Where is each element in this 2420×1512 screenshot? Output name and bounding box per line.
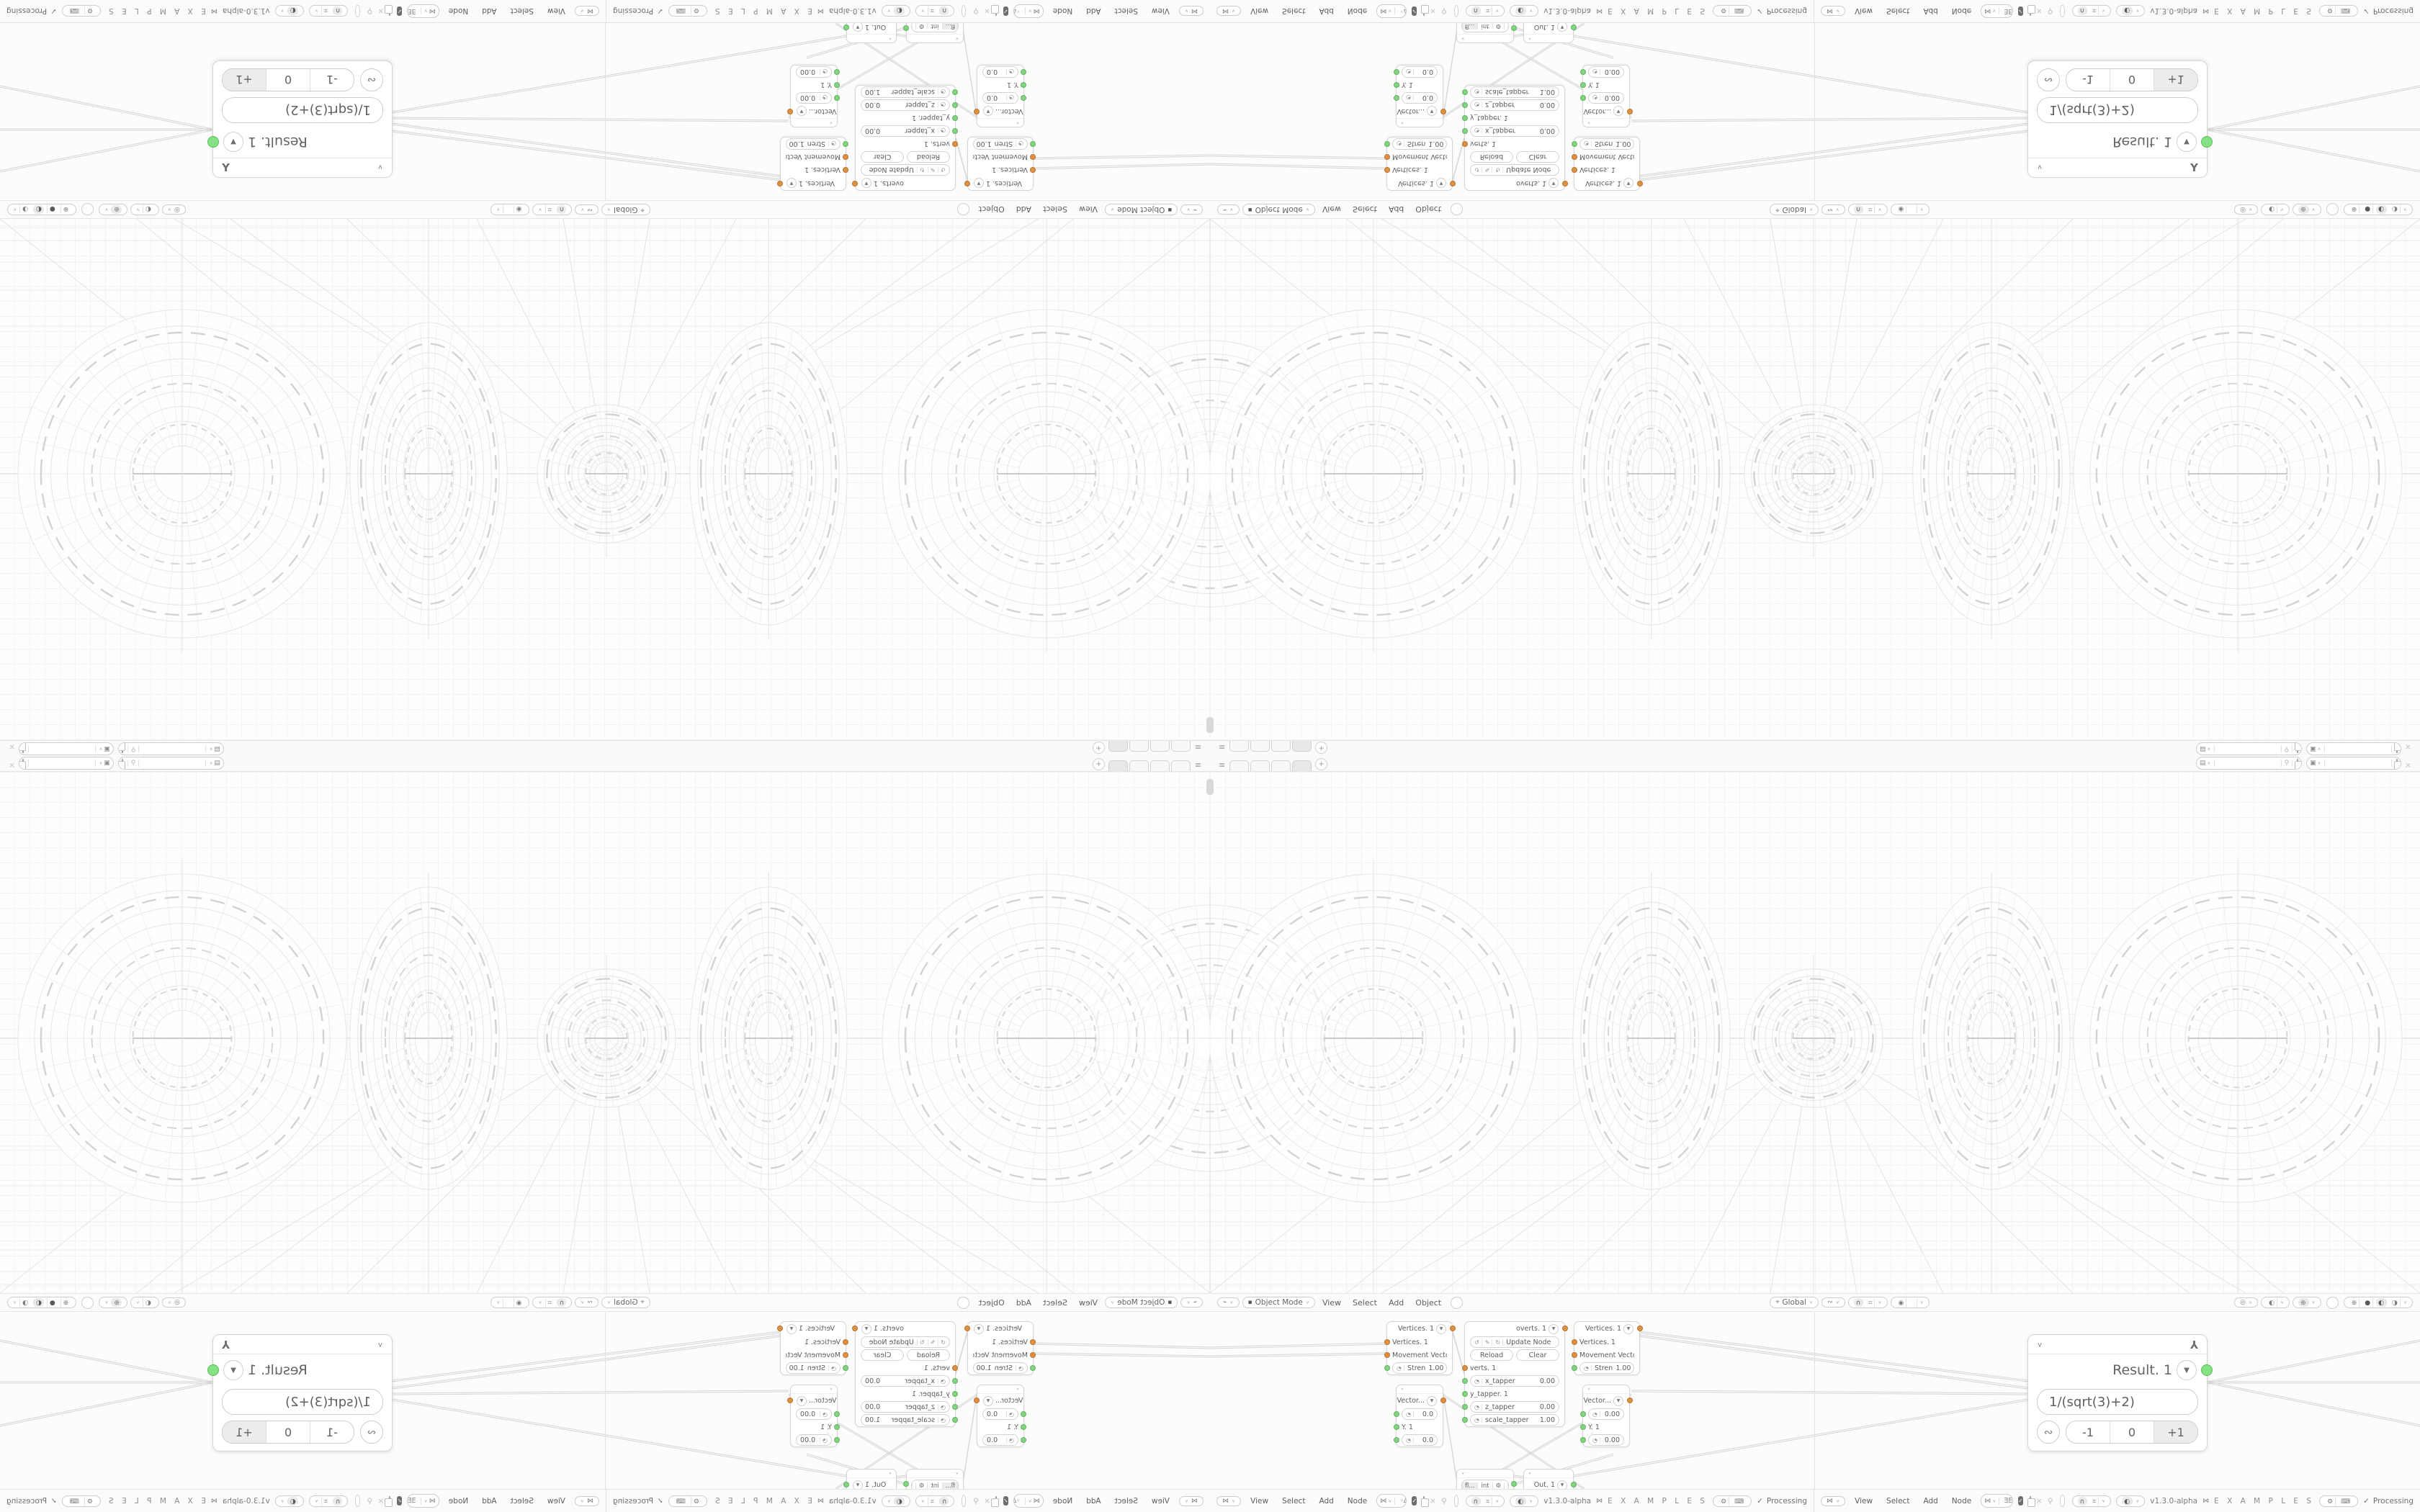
zero-button[interactable]: 0	[2110, 69, 2154, 91]
zero-button[interactable]: 0	[2110, 1421, 2154, 1443]
value-slider[interactable]: ◔0.00	[796, 1434, 832, 1446]
menu-view[interactable]: View	[1318, 205, 1345, 215]
proportional-edit[interactable]: ◉ ∨	[490, 1297, 529, 1308]
value-slider[interactable]: ◔scale_tapper1.00	[861, 86, 950, 98]
close-icon[interactable]: ×	[9, 760, 15, 770]
input-socket[interactable]	[1572, 1352, 1577, 1358]
menu-select[interactable]: Select	[1111, 1497, 1142, 1506]
link-icon-button[interactable]: ∾	[360, 1421, 383, 1444]
menu-add[interactable]: Add	[478, 7, 501, 16]
node-result[interactable]: ∨ Y Result. 1 ▼ 1/(sqrt(3)+2) ∾ -1 0 +1	[212, 60, 393, 178]
pivot-select[interactable]: ∾ ∨	[575, 1297, 599, 1308]
snap-controls[interactable]: ∩ ⌗ ∨	[532, 204, 572, 215]
gizmo-toggle[interactable]: ⊕ ∨	[2293, 1297, 2321, 1308]
orientation-select[interactable]: ⌖ Global ∨	[1770, 204, 1819, 215]
link-icon-button[interactable]: ∾	[360, 68, 383, 91]
overlay-toggle[interactable]: ◐∨	[1510, 6, 1538, 17]
node-result[interactable]: ∨ Y Result. 1 ▼ 1/(sqrt(3)+2) ∾ -1 0 +1	[212, 1334, 393, 1452]
output-socket[interactable]	[788, 109, 794, 114]
value-slider[interactable]: ◔z_tapper0.00	[861, 1401, 950, 1413]
view-layer-selector[interactable]: ▣∨	[2306, 742, 2401, 755]
result-output-socket[interactable]	[2201, 1364, 2213, 1376]
annotate-circle-button[interactable]	[957, 1297, 969, 1309]
editor-type-select[interactable]: ⋈∨	[1821, 6, 1845, 17]
update-node-toolbar[interactable]: ↺✎↻Update Node	[1470, 164, 1559, 176]
node-vector-2[interactable]: ∨Vector...▼◔0.00Y. 1◔0.00	[790, 65, 838, 127]
input-socket[interactable]	[1462, 1365, 1468, 1371]
viewport-3d[interactable]	[0, 772, 1210, 1293]
menu-add[interactable]: Add	[1919, 7, 1942, 16]
collapse-chevron-icon[interactable]: ∨	[1016, 1387, 1019, 1392]
minus-one-button[interactable]: -1	[310, 1421, 354, 1443]
output-socket[interactable]	[974, 109, 980, 114]
editor-type-select[interactable]: ⋈∨	[1216, 1496, 1241, 1506]
node-dropdown[interactable]: ▼	[786, 179, 797, 189]
collapse-chevron-icon[interactable]: ∨	[2037, 1341, 2043, 1348]
workspace-tab[interactable]	[1292, 741, 1312, 752]
result-dropdown[interactable]: ▼	[2177, 132, 2197, 152]
output-socket[interactable]	[974, 1398, 980, 1403]
editor-type-select[interactable]: ⌁ ∨	[1217, 1297, 1240, 1308]
menu-select[interactable]: Select	[1882, 7, 1914, 16]
close-icon[interactable]: ×	[2405, 760, 2411, 770]
node-overts-1[interactable]: overts. 1▼↺✎↻Update NodeReloadClearverts…	[1464, 1321, 1565, 1427]
menu-select[interactable]: Select	[506, 1497, 538, 1506]
update-node-toolbar[interactable]: ↺✎↻Update Node	[1470, 1336, 1559, 1348]
area-divider[interactable]	[1814, 1312, 1815, 1489]
node-dropdown[interactable]: ▼	[853, 22, 863, 32]
footer-action-buttons[interactable]: ⚙⌨	[62, 6, 101, 17]
node-vertices-1[interactable]: Vertices. 1▼Vertices. 1Movement Vecto...…	[967, 137, 1034, 191]
node-editor-canvas[interactable]: ∨ Y Result. 1 ▼ 1/(sqrt(3)+2) ∾ -1 0 +1	[1210, 1312, 2420, 1489]
snap-controls[interactable]: ∩ ⌗ ∨	[1848, 1297, 1888, 1308]
menu-icon[interactable]: ≡	[1219, 742, 1225, 752]
collapse-chevron-icon[interactable]: ∨	[830, 121, 833, 125]
editor-type-select[interactable]: ⋈∨	[575, 1496, 599, 1506]
node-editor-canvas[interactable]: ∨ Y Result. 1 ▼ 1/(sqrt(3)+2) ∾ -1 0 +1	[0, 1312, 1210, 1489]
shading-mode-buttons[interactable]: ⊕ ● ◐ ◑ ∨	[7, 204, 76, 215]
output-socket[interactable]	[853, 1326, 859, 1331]
menu-select[interactable]: Select	[1278, 7, 1309, 16]
zero-button[interactable]: 0	[266, 1421, 310, 1443]
collapse-chevron-icon[interactable]: ∨	[1587, 121, 1590, 125]
result-dropdown[interactable]: ▼	[223, 132, 243, 152]
output-socket[interactable]	[853, 181, 859, 186]
menu-select[interactable]: Select	[506, 7, 538, 16]
input-socket[interactable]	[1394, 82, 1399, 88]
footer-action-buttons[interactable]: ⚙⌨	[668, 1495, 707, 1507]
visibility-toggle[interactable]: ◎ ∨	[2234, 204, 2258, 215]
output-socket[interactable]	[1440, 109, 1446, 114]
input-socket[interactable]	[1572, 154, 1577, 160]
shield-check-icon[interactable]: ✓	[397, 1496, 402, 1506]
menu-add[interactable]: Add	[1082, 7, 1105, 16]
footer-action-buttons[interactable]: ⚙⌨	[2319, 6, 2358, 17]
menu-view[interactable]: View	[543, 7, 570, 16]
value-slider[interactable]: ◔x_tapper0.00	[861, 125, 950, 137]
value-slider[interactable]: ◔0.0	[982, 1408, 1018, 1420]
scene-selector[interactable]: ▤∨ ⚲	[118, 757, 224, 770]
collapse-chevron-icon[interactable]: ∨	[830, 1387, 833, 1392]
collapse-chevron-icon[interactable]: ∨	[1461, 1472, 1464, 1476]
value-slider[interactable]: ◔z_tapper0.00	[1470, 99, 1559, 111]
area-resize-handle[interactable]	[1210, 717, 1214, 733]
mode-select[interactable]: ▪ Object Mode ∨	[1105, 1297, 1178, 1308]
mode-select[interactable]: ▪ Object Mode ∨	[1105, 204, 1178, 215]
node-tree-selector[interactable]: ⋈∨ƎE	[1981, 1494, 2013, 1508]
node-dropdown[interactable]: ▼	[1427, 107, 1437, 117]
output-socket[interactable]	[1511, 25, 1517, 31]
node-overts-1[interactable]: overts. 1▼↺✎↻Update NodeReloadClearverts…	[855, 1321, 956, 1427]
update-node-toolbar[interactable]: ↺✎↻Update Node	[861, 1336, 950, 1348]
input-socket[interactable]	[1580, 69, 1586, 75]
node-overts-1[interactable]: overts. 1▼↺✎↻Update NodeReloadClearverts…	[855, 85, 956, 191]
input-socket[interactable]	[1394, 1424, 1399, 1430]
node-vector-1[interactable]: ∨Vector...▼◔0.0Y. 1◔0.0	[977, 65, 1024, 127]
scene-name-field[interactable]	[2215, 757, 2281, 769]
menu-view[interactable]: View	[543, 1497, 570, 1506]
node-vector-2[interactable]: ∨Vector...▼◔0.00Y. 1◔0.00	[1582, 1385, 1630, 1447]
node-dropdown[interactable]: ▼	[861, 1324, 871, 1334]
menu-node[interactable]: Node	[1049, 1497, 1077, 1506]
shield-check-icon[interactable]: ✓	[2018, 6, 2023, 16]
input-socket[interactable]	[1462, 1378, 1468, 1384]
collapse-chevron-icon[interactable]: ∨	[889, 37, 892, 41]
node-dropdown[interactable]: ▼	[1613, 1396, 1623, 1406]
area-resize-handle[interactable]	[1210, 779, 1214, 795]
snap-controls[interactable]: ∩⌗∨	[309, 1495, 349, 1507]
expression-field[interactable]: 1/(sqrt(3)+2)	[2037, 97, 2198, 123]
input-socket[interactable]	[1394, 1437, 1399, 1443]
proportional-edit[interactable]: ◉ ∨	[490, 204, 529, 215]
menu-object[interactable]: Object	[1411, 205, 1446, 215]
menu-select[interactable]: Select	[1348, 205, 1381, 215]
menu-node[interactable]: Node	[1343, 1497, 1371, 1506]
input-socket[interactable]	[1384, 1352, 1390, 1358]
node-vertices-1[interactable]: Vertices. 1▼Vertices. 1Movement Vecto...…	[967, 1321, 1034, 1375]
workspace-tab[interactable]	[1229, 741, 1249, 752]
collapse-chevron-icon[interactable]: ∨	[1528, 37, 1531, 41]
node-result[interactable]: ∨ Y Result. 1 ▼ 1/(sqrt(3)+2) ∾ -1 0 +1	[2027, 1334, 2208, 1452]
workspace-tab[interactable]	[1171, 741, 1191, 752]
node-dropdown[interactable]: ▼	[1549, 1324, 1559, 1334]
node-tree-selector[interactable]: ⋈∨◦Δ◦2S:◆ƆC◆ЯR◦ЯR◆ƆC◆:2S◦Δ◦	[1013, 1494, 1044, 1508]
input-socket[interactable]	[1384, 167, 1390, 173]
value-slider[interactable]: ◔0.00	[796, 1408, 832, 1420]
output-socket[interactable]	[1562, 1326, 1568, 1331]
plus-one-button[interactable]: +1	[223, 1421, 266, 1443]
collapse-chevron-icon[interactable]: ∨	[1528, 1472, 1531, 1476]
value-slider[interactable]: ◔scale_tapper1.00	[1470, 1414, 1559, 1426]
footer-action-buttons[interactable]: ⚙⌨	[668, 6, 707, 17]
input-socket[interactable]	[1572, 1365, 1577, 1371]
editor-type-select[interactable]: ⌁ ∨	[1180, 1297, 1203, 1308]
output-socket[interactable]	[1511, 1481, 1517, 1487]
overlay-toggle[interactable]: ◐∨	[1510, 1495, 1538, 1507]
collapse-chevron-icon[interactable]: ∨	[956, 37, 959, 41]
footer-action-buttons[interactable]: ⚙⌨	[62, 1495, 101, 1507]
scene-selector[interactable]: ▤∨ ⚲	[2196, 742, 2302, 755]
menu-object[interactable]: Object	[974, 205, 1009, 215]
input-socket[interactable]	[1580, 1424, 1586, 1430]
menu-add[interactable]: Add	[1314, 7, 1337, 16]
link-icon-button[interactable]: ∾	[2037, 68, 2060, 91]
plus-one-button[interactable]: +1	[223, 69, 266, 91]
output-socket[interactable]	[844, 1482, 850, 1488]
result-dropdown[interactable]: ▼	[223, 1360, 243, 1380]
scene-name-field[interactable]	[139, 743, 205, 755]
menu-select[interactable]: Select	[1039, 1298, 1072, 1308]
plus-one-button[interactable]: +1	[2154, 69, 2197, 91]
shading-mode-buttons[interactable]: ⊕ ● ◐ ◑ ∨	[7, 1297, 76, 1308]
input-socket[interactable]	[1462, 115, 1468, 121]
workspace-tab[interactable]	[1250, 741, 1270, 752]
layer-name-field[interactable]	[29, 757, 95, 769]
menu-add[interactable]: Add	[1082, 1497, 1105, 1506]
snap-controls[interactable]: ∩⌗∨	[915, 1495, 955, 1507]
xray-circle-button[interactable]	[81, 1297, 94, 1309]
snap-controls[interactable]: ∩⌗∨	[1466, 1495, 1505, 1507]
node-vector-2[interactable]: ∨Vector...▼◔0.00Y. 1◔0.00	[790, 1385, 838, 1447]
collapse-chevron-icon[interactable]: ∨	[889, 1472, 892, 1476]
snap-controls[interactable]: ∩⌗∨	[1466, 6, 1505, 17]
plus-one-button[interactable]: +1	[2154, 1421, 2197, 1443]
collapse-chevron-icon[interactable]: ∨	[1016, 121, 1019, 125]
gizmo-toggle[interactable]: ⊕ ∨	[99, 204, 127, 215]
scene-selector[interactable]: ▤∨ ⚲	[118, 742, 224, 755]
area-divider[interactable]	[1814, 23, 1815, 200]
proportional-edit[interactable]: ◉ ∨	[1891, 204, 1930, 215]
value-slider[interactable]: ◔0.00	[1588, 1408, 1624, 1420]
menu-select[interactable]: Select	[1039, 205, 1072, 215]
menu-view[interactable]: View	[1147, 7, 1174, 16]
value-slider[interactable]: ◔Stren1.00	[973, 138, 1028, 150]
input-socket[interactable]	[1462, 1404, 1468, 1410]
output-socket[interactable]	[1571, 1482, 1577, 1488]
pin-icon[interactable]: ⚲	[2281, 760, 2293, 767]
menu-select[interactable]: Select	[1111, 7, 1142, 16]
workspace-tab[interactable]	[1171, 760, 1191, 771]
mode-select[interactable]: ▪ Object Mode ∨	[1242, 1297, 1315, 1308]
node-result[interactable]: ∨ Y Result. 1 ▼ 1/(sqrt(3)+2) ∾ -1 0 +1	[2027, 60, 2208, 178]
value-slider[interactable]: ◔x_tapper0.00	[1470, 125, 1559, 137]
visibility-toggle[interactable]: ◎ ∨	[2234, 1297, 2258, 1308]
editor-type-select[interactable]: ⋈∨	[1821, 1496, 1845, 1506]
add-workspace-button[interactable]: +	[1093, 758, 1105, 770]
node-editor-canvas[interactable]: ∨ Y Result. 1 ▼ 1/(sqrt(3)+2) ∾ -1 0 +1	[1210, 23, 2420, 200]
editor-type-select[interactable]: ⌁ ∨	[1217, 204, 1240, 215]
collapse-chevron-icon[interactable]: ∨	[1461, 37, 1464, 41]
menu-node[interactable]: Node	[444, 7, 472, 16]
visibility-toggle[interactable]: ◎ ∨	[162, 204, 186, 215]
input-socket[interactable]	[1572, 1339, 1577, 1345]
shield-check-icon[interactable]: ✓	[1003, 1496, 1008, 1506]
area-resize-handle[interactable]	[1206, 717, 1210, 733]
xray-circle-button[interactable]	[81, 204, 94, 216]
shield-check-icon[interactable]: ✓	[2018, 1496, 2023, 1506]
overlays-toggle[interactable]: ◐ ∨	[2261, 1297, 2290, 1308]
node-dropdown[interactable]: ▼	[861, 179, 871, 189]
workspace-tab[interactable]	[1129, 760, 1149, 771]
node-vertices-2[interactable]: Vertices. 1▼Vertices. 1Movement Vecto...…	[780, 137, 846, 191]
overlays-toggle[interactable]: ◐ ∨	[130, 1297, 159, 1308]
node-vector-2[interactable]: ∨Vector...▼◔0.00Y. 1◔0.00	[1582, 65, 1630, 127]
node-tree-selector[interactable]: ⋈∨◦Δ◦2S:◆ƆC◆ЯR◦ЯR◆ƆC◆:2S◦Δ◦	[1376, 1494, 1407, 1508]
menu-view[interactable]: View	[1147, 1497, 1174, 1506]
workspace-tab[interactable]	[1250, 760, 1270, 771]
input-socket[interactable]	[1384, 1365, 1390, 1371]
area-divider[interactable]	[605, 23, 606, 200]
output-socket[interactable]	[778, 181, 784, 186]
overlay-toggle[interactable]: ◐∨	[882, 6, 910, 17]
xray-circle-button[interactable]	[2326, 1297, 2339, 1309]
output-socket[interactable]	[1637, 1326, 1643, 1331]
node-dropdown[interactable]: ▼	[797, 107, 807, 117]
overlay-toggle[interactable]: ◐∨	[882, 1495, 910, 1507]
visibility-toggle[interactable]: ◎ ∨	[162, 1297, 186, 1308]
node-tree-selector[interactable]: ⋈∨◦Δ◦2S:◆ƆC◆ЯR◦ЯR◆ƆC◆:2S◦Δ◦	[1013, 4, 1044, 18]
layer-name-field[interactable]	[2325, 743, 2391, 755]
node-dropdown[interactable]: ▼	[1623, 1324, 1633, 1334]
collapse-chevron-icon[interactable]: ∨	[377, 1341, 383, 1348]
link-icon-button[interactable]: ∾	[2037, 1421, 2060, 1444]
menu-icon[interactable]: ≡	[1195, 760, 1201, 770]
scene-selector[interactable]: ▤∨ ⚲	[2196, 757, 2302, 770]
node-vertices-2[interactable]: Vertices. 1▼Vertices. 1Movement Vecto...…	[1574, 1321, 1640, 1375]
layer-name-field[interactable]	[29, 743, 95, 755]
shield-check-icon[interactable]: ✓	[1412, 6, 1417, 16]
value-slider[interactable]: ◔0.0	[982, 92, 1018, 104]
viewport-3d[interactable]	[0, 219, 1210, 740]
output-socket[interactable]	[1562, 181, 1568, 186]
overlay-toggle[interactable]: ◐∨	[2116, 6, 2145, 17]
workspace-tab[interactable]	[1150, 760, 1170, 771]
annotate-circle-button[interactable]	[957, 204, 969, 216]
menu-object[interactable]: Object	[974, 1298, 1009, 1308]
collapse-chevron-icon[interactable]: ∨	[1401, 1387, 1404, 1392]
annotate-circle-button[interactable]	[1451, 204, 1463, 216]
menu-add[interactable]: Add	[1012, 205, 1036, 215]
value-slider[interactable]: ◔Stren1.00	[1579, 1362, 1634, 1374]
viewport-3d[interactable]	[1210, 772, 2420, 1293]
editor-type-select[interactable]: ⋈∨	[1216, 6, 1241, 17]
pin-icon[interactable]: ⚲	[128, 760, 140, 767]
node-dropdown[interactable]: ▼	[1549, 179, 1559, 189]
area-resize-handle[interactable]	[1206, 779, 1210, 795]
menu-node[interactable]: Node	[1948, 7, 1976, 16]
pin-icon[interactable]: ⚲	[128, 745, 140, 752]
overlay-toggle[interactable]: ◐∨	[275, 6, 304, 17]
footer-action-buttons[interactable]: ⚙⌨	[1713, 1495, 1752, 1507]
input-socket[interactable]	[1580, 1437, 1586, 1443]
snap-controls[interactable]: ∩⌗∨	[915, 6, 955, 17]
menu-icon[interactable]: ≡	[1219, 760, 1225, 770]
clear-button[interactable]: Clear	[861, 151, 904, 163]
workspace-tab[interactable]	[1271, 741, 1291, 752]
node-vertices-2[interactable]: Vertices. 1▼Vertices. 1Movement Vecto...…	[780, 1321, 846, 1375]
input-socket[interactable]	[1572, 141, 1577, 147]
menu-node[interactable]: Node	[1343, 7, 1371, 16]
value-slider[interactable]: ◔Stren1.00	[1392, 1362, 1447, 1374]
input-socket[interactable]	[1580, 82, 1586, 88]
node-vector-1[interactable]: ∨Vector...▼◔0.0Y. 1◔0.0	[1396, 65, 1443, 127]
value-slider[interactable]: ◔0.00	[1588, 92, 1624, 104]
menu-select[interactable]: Select	[1882, 1497, 1914, 1506]
value-slider[interactable]: ◔0.0	[982, 66, 1018, 78]
xray-circle-button[interactable]	[2326, 204, 2339, 216]
menu-add[interactable]: Add	[1384, 1298, 1408, 1308]
value-slider[interactable]: ◔x_tapper0.00	[1470, 1375, 1559, 1387]
shield-check-icon[interactable]: ✓	[1412, 1496, 1417, 1506]
node-dropdown[interactable]: ▼	[1427, 1396, 1437, 1406]
expression-field[interactable]: 1/(sqrt(3)+2)	[222, 97, 383, 123]
orientation-select[interactable]: ⌖ Global ∨	[1770, 1297, 1819, 1308]
node-dropdown[interactable]: ▼	[1613, 107, 1623, 117]
expression-field[interactable]: 1/(sqrt(3)+2)	[222, 1389, 383, 1415]
output-socket[interactable]	[1627, 1398, 1633, 1403]
input-socket[interactable]	[1572, 167, 1577, 173]
output-socket[interactable]	[778, 1326, 784, 1331]
value-slider[interactable]: ◔scale_tapper1.00	[1470, 86, 1559, 98]
value-slider[interactable]: ◔Stren1.00	[1579, 138, 1634, 150]
snap-controls[interactable]: ∩ ⌗ ∨	[532, 1297, 572, 1308]
value-slider[interactable]: ◔0.0	[982, 1434, 1018, 1446]
menu-add[interactable]: Add	[1012, 1298, 1036, 1308]
snap-controls[interactable]: ∩⌗∨	[2072, 1495, 2112, 1507]
menu-node[interactable]: Node	[1049, 7, 1077, 16]
menu-view[interactable]: View	[1246, 1497, 1273, 1506]
result-output-socket[interactable]	[207, 1364, 219, 1376]
node-vertices-1[interactable]: Vertices. 1▼Vertices. 1Movement Vecto...…	[1386, 137, 1453, 191]
value-slider[interactable]: ◔Stren1.00	[1392, 138, 1447, 150]
update-node-toolbar[interactable]: ↺✎↻Update Node	[861, 164, 950, 176]
output-socket[interactable]	[1637, 181, 1643, 186]
footer-action-buttons[interactable]: ⚙⌨	[1713, 6, 1752, 17]
menu-view[interactable]: View	[1075, 205, 1102, 215]
node-dropdown[interactable]: ▼	[974, 179, 984, 189]
input-socket[interactable]	[1462, 128, 1468, 134]
collapse-chevron-icon[interactable]: ∨	[1401, 121, 1404, 125]
node-vector-1[interactable]: ∨Vector...▼◔0.0Y. 1◔0.0	[1396, 1385, 1443, 1447]
output-socket[interactable]	[1450, 1326, 1456, 1331]
menu-node[interactable]: Node	[444, 1497, 472, 1506]
collapse-chevron-icon[interactable]: ∨	[1587, 1387, 1590, 1392]
overlays-toggle[interactable]: ◐ ∨	[2261, 204, 2290, 215]
input-socket[interactable]	[1462, 1391, 1468, 1397]
zero-button[interactable]: 0	[266, 69, 310, 91]
add-workspace-button[interactable]: +	[1315, 742, 1327, 754]
scene-name-field[interactable]	[2215, 743, 2281, 755]
value-slider[interactable]: ◔0.0	[1402, 92, 1438, 104]
value-slider[interactable]: ◔0.0	[1402, 1408, 1438, 1420]
output-socket[interactable]	[904, 1481, 910, 1487]
snap-controls[interactable]: ∩⌗∨	[309, 6, 349, 17]
value-slider[interactable]: ◔x_tapper0.00	[861, 1375, 950, 1387]
overlays-toggle[interactable]: ◐ ∨	[130, 204, 159, 215]
output-socket[interactable]	[965, 1326, 971, 1331]
node-dropdown[interactable]: ▼	[786, 1324, 797, 1334]
output-socket[interactable]	[1440, 1398, 1446, 1403]
node-dropdown[interactable]: ▼	[983, 107, 993, 117]
reload-button[interactable]: Reload	[1470, 151, 1513, 163]
pivot-select[interactable]: ∾ ∨	[1821, 1297, 1845, 1308]
menu-node[interactable]: Node	[1948, 1497, 1976, 1506]
output-socket[interactable]	[1627, 109, 1633, 114]
clear-button[interactable]: Clear	[861, 1349, 904, 1361]
node-dropdown[interactable]: ▼	[1436, 1324, 1446, 1334]
menu-view[interactable]: View	[1850, 7, 1877, 16]
value-slider[interactable]: ◔Stren1.00	[786, 138, 841, 150]
